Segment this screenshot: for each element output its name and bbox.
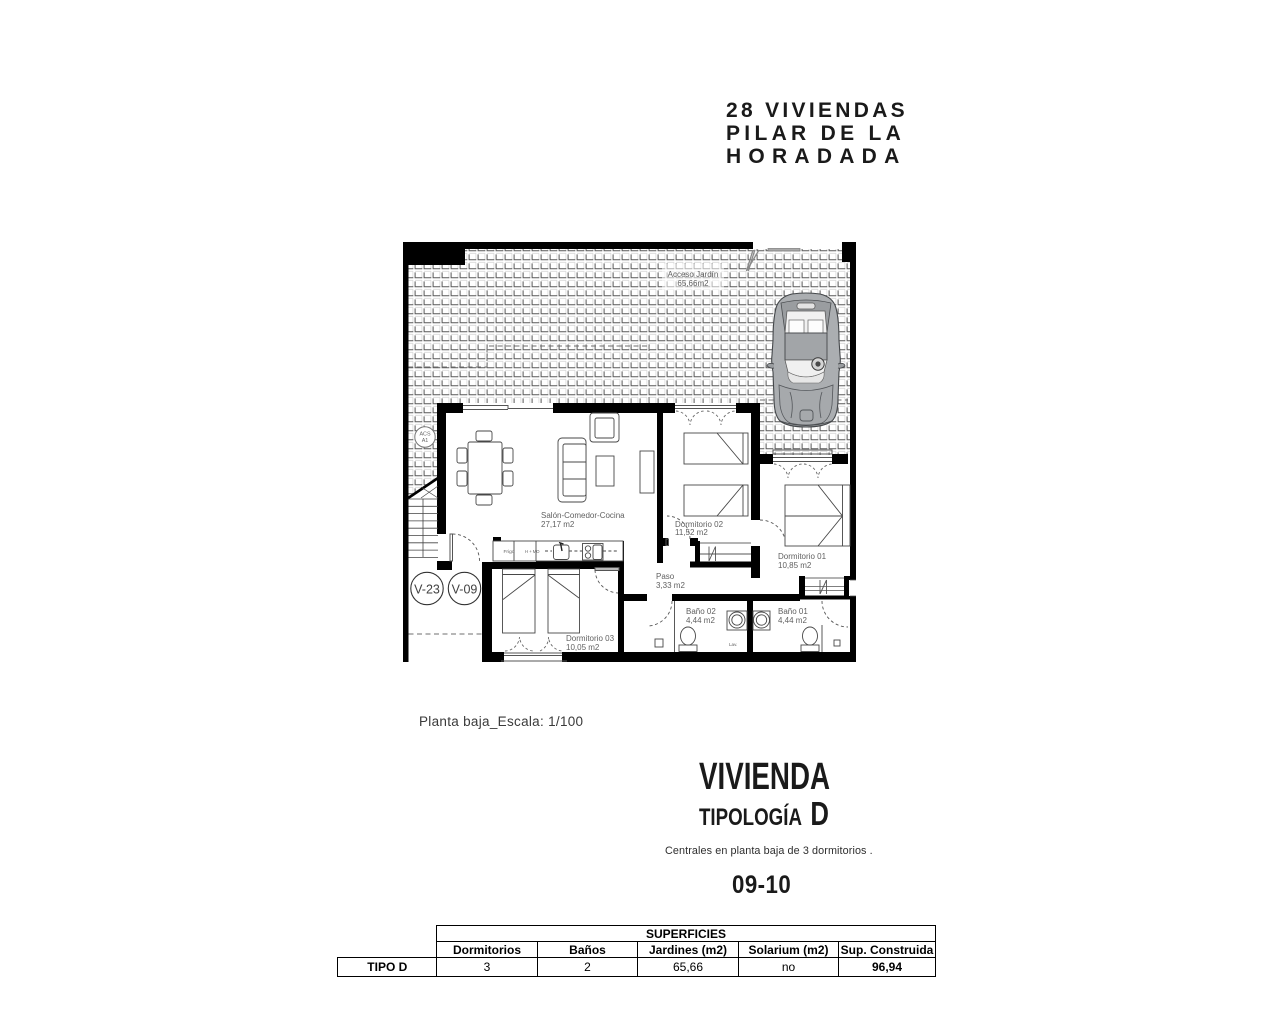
svg-text:Frigo: Frigo [504,549,515,555]
svg-text:Dormitorio 01: Dormitorio 01 [778,552,827,561]
svg-text:A1: A1 [422,438,429,444]
svg-text:H + MO: H + MO [525,549,540,554]
svg-text:10,05 m2: 10,05 m2 [566,643,600,652]
svg-text:10,85 m2: 10,85 m2 [778,561,812,570]
svg-text:Baño 02: Baño 02 [686,607,716,616]
svg-text:65,66m2: 65,66m2 [677,279,709,288]
svg-text:4,44 m2: 4,44 m2 [686,616,715,625]
svg-text:V-23: V-23 [414,583,440,597]
svg-text:ACS: ACS [419,432,430,438]
svg-text:Lav.: Lav. [729,642,737,647]
svg-text:V-09: V-09 [452,583,478,597]
svg-text:3,33 m2: 3,33 m2 [656,581,685,590]
svg-text:Baño 01: Baño 01 [778,607,808,616]
svg-text:4,44 m2: 4,44 m2 [778,616,807,625]
svg-text:11,52 m2: 11,52 m2 [675,528,708,537]
svg-text:Paso: Paso [656,572,675,581]
svg-text:Dormitorio 03: Dormitorio 03 [566,634,615,643]
svg-text:27,17 m2: 27,17 m2 [541,520,575,529]
svg-text:Acceso Jardín: Acceso Jardín [668,270,719,279]
svg-text:Salón-Comedor-Cocina: Salón-Comedor-Cocina [541,511,625,520]
